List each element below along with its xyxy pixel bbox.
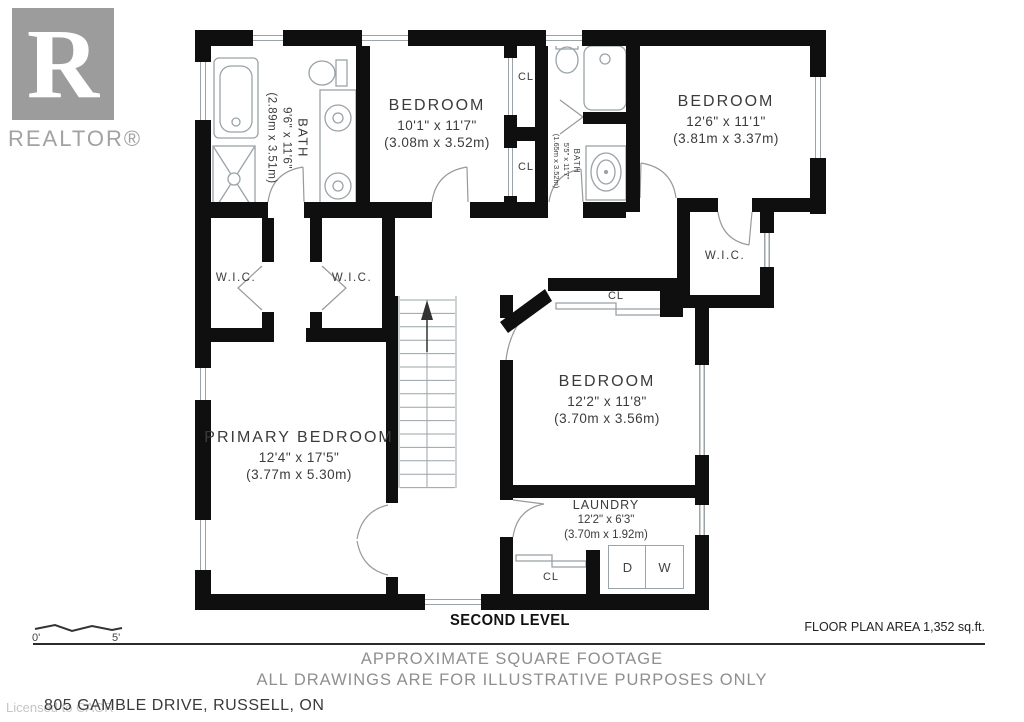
wall xyxy=(500,537,513,594)
wall xyxy=(583,112,626,124)
window xyxy=(195,520,211,570)
room-label-bedroom-right: BEDROOM 12'6" x 11'1" (3.81m x 3.37m) xyxy=(673,92,779,148)
hall-bath-inner-door xyxy=(560,100,583,134)
bifold-door-closet-mid xyxy=(556,303,676,315)
scale-bar-line xyxy=(35,625,122,631)
room-label-laundry: LAUNDRY 12'2" x 6'3" (3.70m x 1.92m) xyxy=(564,497,648,543)
floor-plan-page: R REALTOR® Licensed to CAOR xyxy=(0,0,1024,722)
wall xyxy=(626,46,640,212)
wall xyxy=(470,202,548,218)
wall xyxy=(500,295,513,318)
footer-note-1: APPROXIMATE SQUARE FOOTAGE xyxy=(0,650,1024,669)
window xyxy=(504,148,517,196)
wall xyxy=(386,577,398,594)
property-address: 805 GAMBLE DRIVE, RUSSELL, ON xyxy=(44,697,324,715)
window xyxy=(695,505,709,535)
floor-plan-area: FLOOR PLAN AREA 1,352 sq.ft. xyxy=(690,620,985,634)
ensuite-tub xyxy=(214,58,258,138)
closet-label-bottom: CL xyxy=(543,571,559,583)
stairs-direction-arrow xyxy=(421,300,433,352)
window xyxy=(425,594,481,610)
wall xyxy=(195,202,268,218)
wall xyxy=(504,127,548,141)
wall xyxy=(262,218,274,262)
bedroom-right-door xyxy=(640,163,676,198)
footer-divider xyxy=(33,643,985,645)
washer-box: W xyxy=(645,545,684,589)
wic-label-right: W.I.C. xyxy=(705,250,745,262)
window xyxy=(546,30,582,46)
hall-bath-sink xyxy=(586,146,626,200)
window xyxy=(195,368,211,400)
wall xyxy=(500,360,513,500)
bifold-door-closet-bottom xyxy=(516,555,586,567)
ensuite-toilet xyxy=(309,60,347,86)
hall-bath-tub xyxy=(584,46,626,110)
wall xyxy=(583,202,626,218)
room-label-bedroom-top: BEDROOM 10'1" x 11'7" (3.08m x 3.52m) xyxy=(384,96,490,152)
window xyxy=(253,30,283,46)
wic-label-left: W.I.C. xyxy=(216,272,256,284)
wall xyxy=(660,291,683,317)
window xyxy=(760,233,774,267)
staircase xyxy=(399,296,456,488)
room-label-bedroom-mid: BEDROOM 12'2" x 11'8" (3.70m x 3.56m) xyxy=(554,372,660,428)
wic-right-door xyxy=(718,212,752,245)
wall xyxy=(195,30,826,46)
wall xyxy=(304,202,432,218)
closet-label-top: CL xyxy=(518,71,534,83)
room-label-ensuite-bath: BATH 9'6" x 11'6" (2.89m x 3.51m) xyxy=(264,92,311,183)
closet-label-top2: CL xyxy=(518,161,534,173)
footer-note-2: ALL DRAWINGS ARE FOR ILLUSTRATIVE PURPOS… xyxy=(0,671,1024,690)
wall xyxy=(306,328,395,342)
window xyxy=(504,58,517,115)
room-label-primary-bedroom: PRIMARY BEDROOM 12'4" x 17'5" (3.77m x 5… xyxy=(204,428,393,484)
wall xyxy=(586,550,600,594)
window xyxy=(695,365,709,455)
wall xyxy=(310,218,322,262)
wall xyxy=(356,46,370,202)
window xyxy=(810,77,826,158)
room-label-hall-bath: BATH 5'5" x 11'7" (1.65m x 3.52m) xyxy=(551,134,581,189)
dryer-box: D xyxy=(608,545,647,589)
primary-double-doors xyxy=(357,505,388,575)
window xyxy=(195,62,211,120)
laundry-door xyxy=(513,500,544,537)
wall xyxy=(535,46,548,202)
ensuite-double-vanity xyxy=(320,90,356,212)
closet-label-mid: CL xyxy=(608,290,624,302)
bedroom-top-door xyxy=(432,167,468,202)
wic-label-center: W.I.C. xyxy=(332,272,372,284)
wall xyxy=(195,328,274,342)
window xyxy=(362,30,408,46)
level-title: SECOND LEVEL xyxy=(372,612,648,630)
